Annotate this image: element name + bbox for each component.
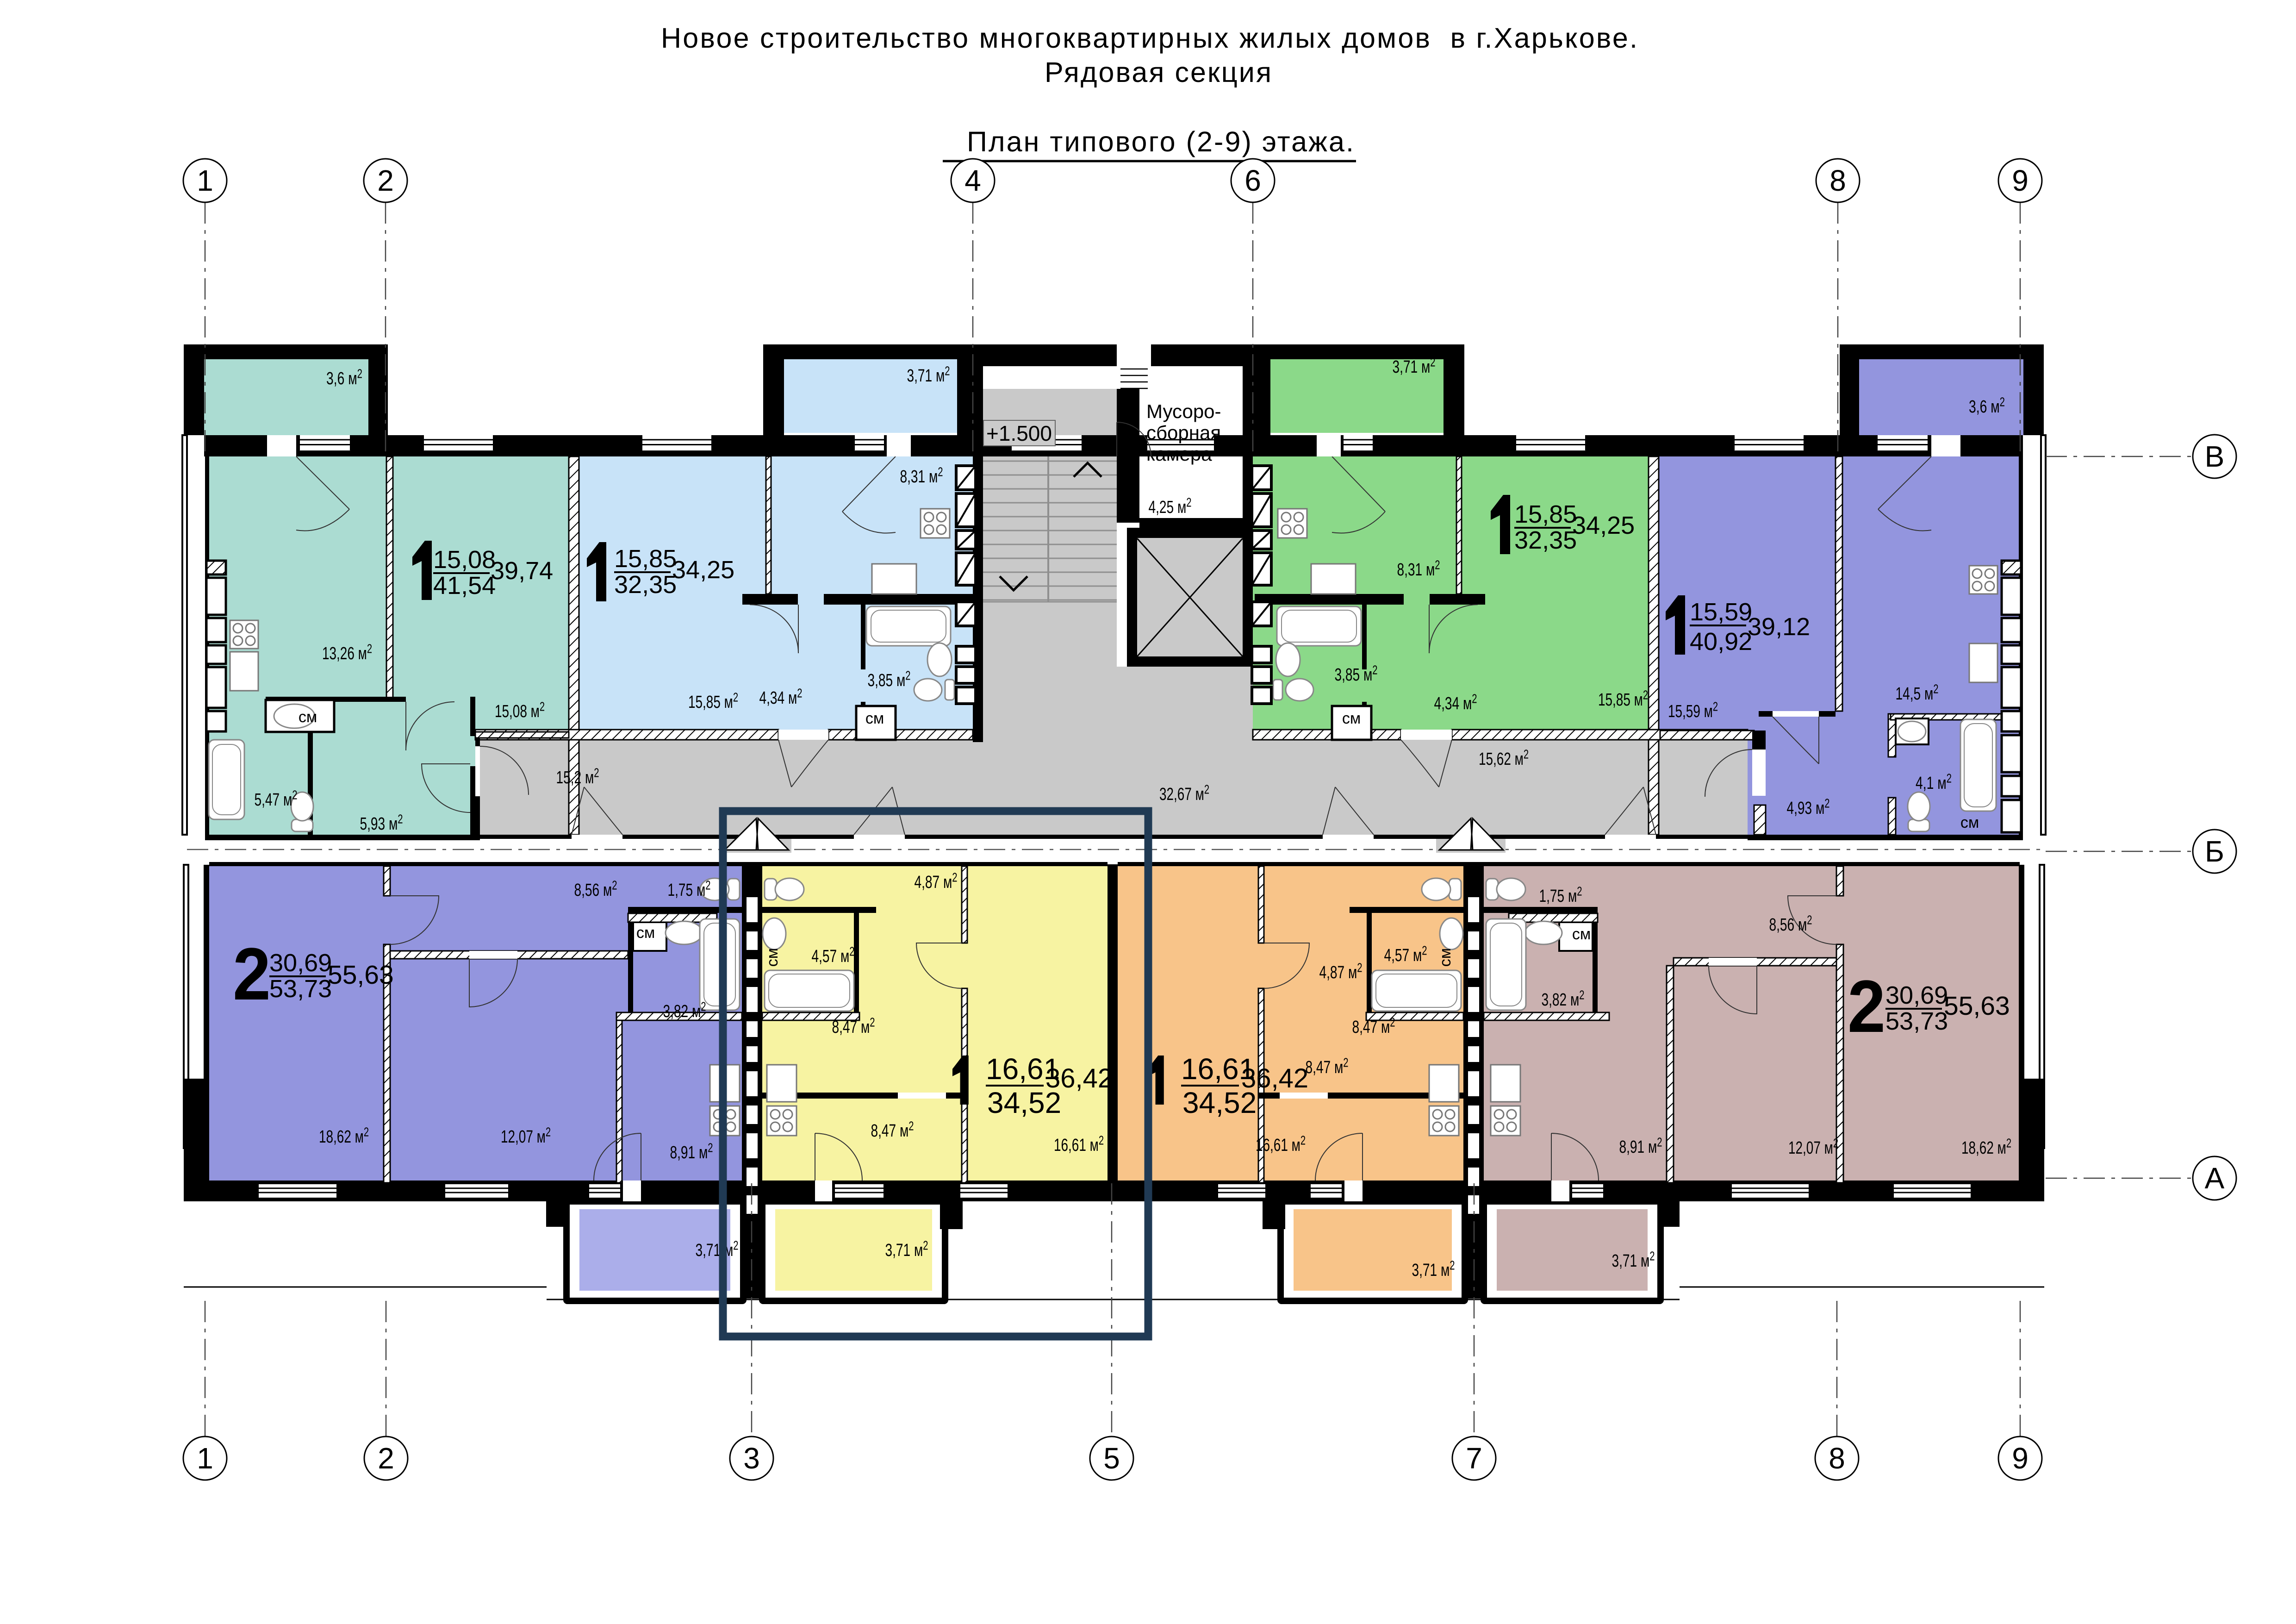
svg-text:3,71 м2: 3,71 м2 <box>1412 1258 1455 1280</box>
svg-text:13,26 м2: 13,26 м2 <box>322 642 372 663</box>
svg-text:8,91 м2: 8,91 м2 <box>1619 1135 1662 1157</box>
svg-text:см: см <box>764 948 781 967</box>
svg-text:9: 9 <box>2012 164 2028 197</box>
svg-text:16,61 м2: 16,61 м2 <box>1054 1133 1104 1155</box>
svg-text:2: 2 <box>1848 965 1885 1048</box>
svg-text:камера: камера <box>1146 443 1212 465</box>
svg-text:Мусоро-: Мусоро- <box>1146 400 1221 422</box>
svg-text:5: 5 <box>1103 1442 1120 1475</box>
svg-text:8,31 м2: 8,31 м2 <box>900 465 943 487</box>
svg-text:6: 6 <box>1244 164 1261 197</box>
svg-text:4,93 м2: 4,93 м2 <box>1787 796 1830 818</box>
svg-text:сборная: сборная <box>1146 422 1221 443</box>
svg-text:4,1 м2: 4,1 м2 <box>1916 771 1952 793</box>
svg-text:41,54: 41,54 <box>433 572 496 600</box>
svg-text:15,59 м2: 15,59 м2 <box>1668 700 1718 721</box>
svg-text:3,71 м2: 3,71 м2 <box>907 364 950 386</box>
svg-text:15,85: 15,85 <box>614 545 677 573</box>
svg-text:15,08 м2: 15,08 м2 <box>495 700 545 721</box>
svg-text:1,75 м2: 1,75 м2 <box>1539 884 1582 906</box>
svg-text:8,56 м2: 8,56 м2 <box>574 878 617 900</box>
svg-text:см: см <box>299 708 317 726</box>
svg-text:55,63: 55,63 <box>328 960 394 990</box>
svg-text:см: см <box>636 924 655 942</box>
svg-text:8,47 м2: 8,47 м2 <box>1306 1056 1349 1077</box>
svg-text:55,63: 55,63 <box>1944 991 2010 1021</box>
svg-text:3,71 м2: 3,71 м2 <box>1393 355 1436 377</box>
svg-text:40,92: 40,92 <box>1690 628 1752 656</box>
svg-text:8,31 м2: 8,31 м2 <box>1397 558 1440 580</box>
svg-text:18,62 м2: 18,62 м2 <box>1961 1136 2011 1158</box>
svg-text:8,91 м2: 8,91 м2 <box>670 1141 713 1162</box>
svg-text:12,07 м2: 12,07 м2 <box>501 1125 551 1147</box>
svg-text:53,73: 53,73 <box>1885 1007 1948 1035</box>
svg-text:В: В <box>2205 440 2225 473</box>
svg-text:15,85 м2: 15,85 м2 <box>1598 688 1648 710</box>
svg-text:3,71 м2: 3,71 м2 <box>1612 1249 1655 1271</box>
svg-text:8,47 м2: 8,47 м2 <box>1352 1015 1395 1037</box>
svg-text:34,25: 34,25 <box>1572 512 1635 539</box>
svg-text:15,62 м2: 15,62 м2 <box>1479 747 1529 769</box>
svg-text:4,57 м2: 4,57 м2 <box>812 944 855 966</box>
svg-text:5,93 м2: 5,93 м2 <box>360 812 403 834</box>
svg-text:39,12: 39,12 <box>1748 613 1810 641</box>
svg-text:Новое строительство многокварт: Новое строительство многоквартирных жилы… <box>661 22 1637 54</box>
svg-text:см: см <box>1437 948 1454 967</box>
svg-text:15,59: 15,59 <box>1690 598 1752 626</box>
svg-text:см: см <box>865 710 884 727</box>
svg-text:4,57 м2: 4,57 м2 <box>1384 943 1427 965</box>
svg-text:7: 7 <box>1466 1442 1482 1475</box>
svg-text:15,08: 15,08 <box>433 546 496 574</box>
svg-text:32,67 м2: 32,67 м2 <box>1159 782 1209 804</box>
svg-text:8,47 м2: 8,47 м2 <box>871 1119 914 1141</box>
svg-text:5,47 м2: 5,47 м2 <box>255 788 298 810</box>
svg-text:1: 1 <box>197 164 213 197</box>
svg-text:15,85: 15,85 <box>1514 500 1577 528</box>
svg-text:3,85 м2: 3,85 м2 <box>1335 663 1378 685</box>
svg-text:32,35: 32,35 <box>614 571 677 599</box>
svg-text:2: 2 <box>378 1442 394 1475</box>
svg-text:2: 2 <box>233 932 271 1015</box>
svg-text:16,61 м2: 16,61 м2 <box>1256 1133 1306 1155</box>
svg-text:План типового (2-9) этажа.: План типового (2-9) этажа. <box>967 126 1354 157</box>
svg-text:4,34 м2: 4,34 м2 <box>1434 692 1477 713</box>
svg-text:+1.500: +1.500 <box>986 421 1052 445</box>
svg-text:3,82 м2: 3,82 м2 <box>663 999 706 1021</box>
svg-text:34,25: 34,25 <box>672 556 734 584</box>
svg-text:см: см <box>1342 710 1361 727</box>
svg-text:3: 3 <box>743 1442 760 1475</box>
svg-text:4,25 м2: 4,25 м2 <box>1149 495 1192 517</box>
svg-text:18,62 м2: 18,62 м2 <box>319 1125 369 1147</box>
svg-text:36,42: 36,42 <box>1045 1063 1113 1093</box>
svg-text:8: 8 <box>1829 164 1846 197</box>
svg-text:39,74: 39,74 <box>491 557 553 585</box>
svg-text:3,71 м2: 3,71 м2 <box>885 1238 928 1260</box>
svg-text:см: см <box>1572 925 1591 943</box>
svg-text:8,47 м2: 8,47 м2 <box>832 1015 875 1037</box>
svg-text:4,87 м2: 4,87 м2 <box>1319 961 1363 982</box>
svg-text:15,2 м2: 15,2 м2 <box>556 766 599 787</box>
svg-text:4,87 м2: 4,87 м2 <box>915 870 958 892</box>
svg-text:1: 1 <box>197 1442 213 1475</box>
svg-text:3,6 м2: 3,6 м2 <box>1969 395 2005 417</box>
svg-text:12,07 м2: 12,07 м2 <box>1788 1136 1838 1158</box>
svg-text:Рядовая секция: Рядовая секция <box>1045 56 1271 88</box>
svg-text:8: 8 <box>1829 1442 1845 1475</box>
svg-text:30,69: 30,69 <box>1885 981 1948 1009</box>
svg-text:3,71 м2: 3,71 м2 <box>696 1238 739 1260</box>
svg-text:4: 4 <box>964 164 981 197</box>
svg-text:2: 2 <box>377 164 394 197</box>
svg-text:см: см <box>1960 814 1979 831</box>
svg-text:3,6 м2: 3,6 м2 <box>326 367 362 388</box>
svg-text:8,56 м2: 8,56 м2 <box>1769 913 1812 935</box>
svg-text:32,35: 32,35 <box>1514 526 1577 554</box>
svg-text:4,34 м2: 4,34 м2 <box>759 686 803 708</box>
svg-text:53,73: 53,73 <box>269 975 332 1003</box>
svg-text:9: 9 <box>2012 1442 2028 1475</box>
svg-text:3,85 м2: 3,85 м2 <box>868 668 911 690</box>
svg-text:3,82 м2: 3,82 м2 <box>1542 988 1585 1010</box>
svg-text:14,5 м2: 14,5 м2 <box>1896 682 1939 704</box>
svg-text:Б: Б <box>2205 835 2224 868</box>
svg-text:30,69: 30,69 <box>269 949 332 977</box>
svg-text:15,85 м2: 15,85 м2 <box>688 690 738 712</box>
svg-text:А: А <box>2205 1162 2225 1195</box>
svg-text:36,42: 36,42 <box>1241 1063 1308 1093</box>
svg-text:1,75 м2: 1,75 м2 <box>668 878 711 900</box>
